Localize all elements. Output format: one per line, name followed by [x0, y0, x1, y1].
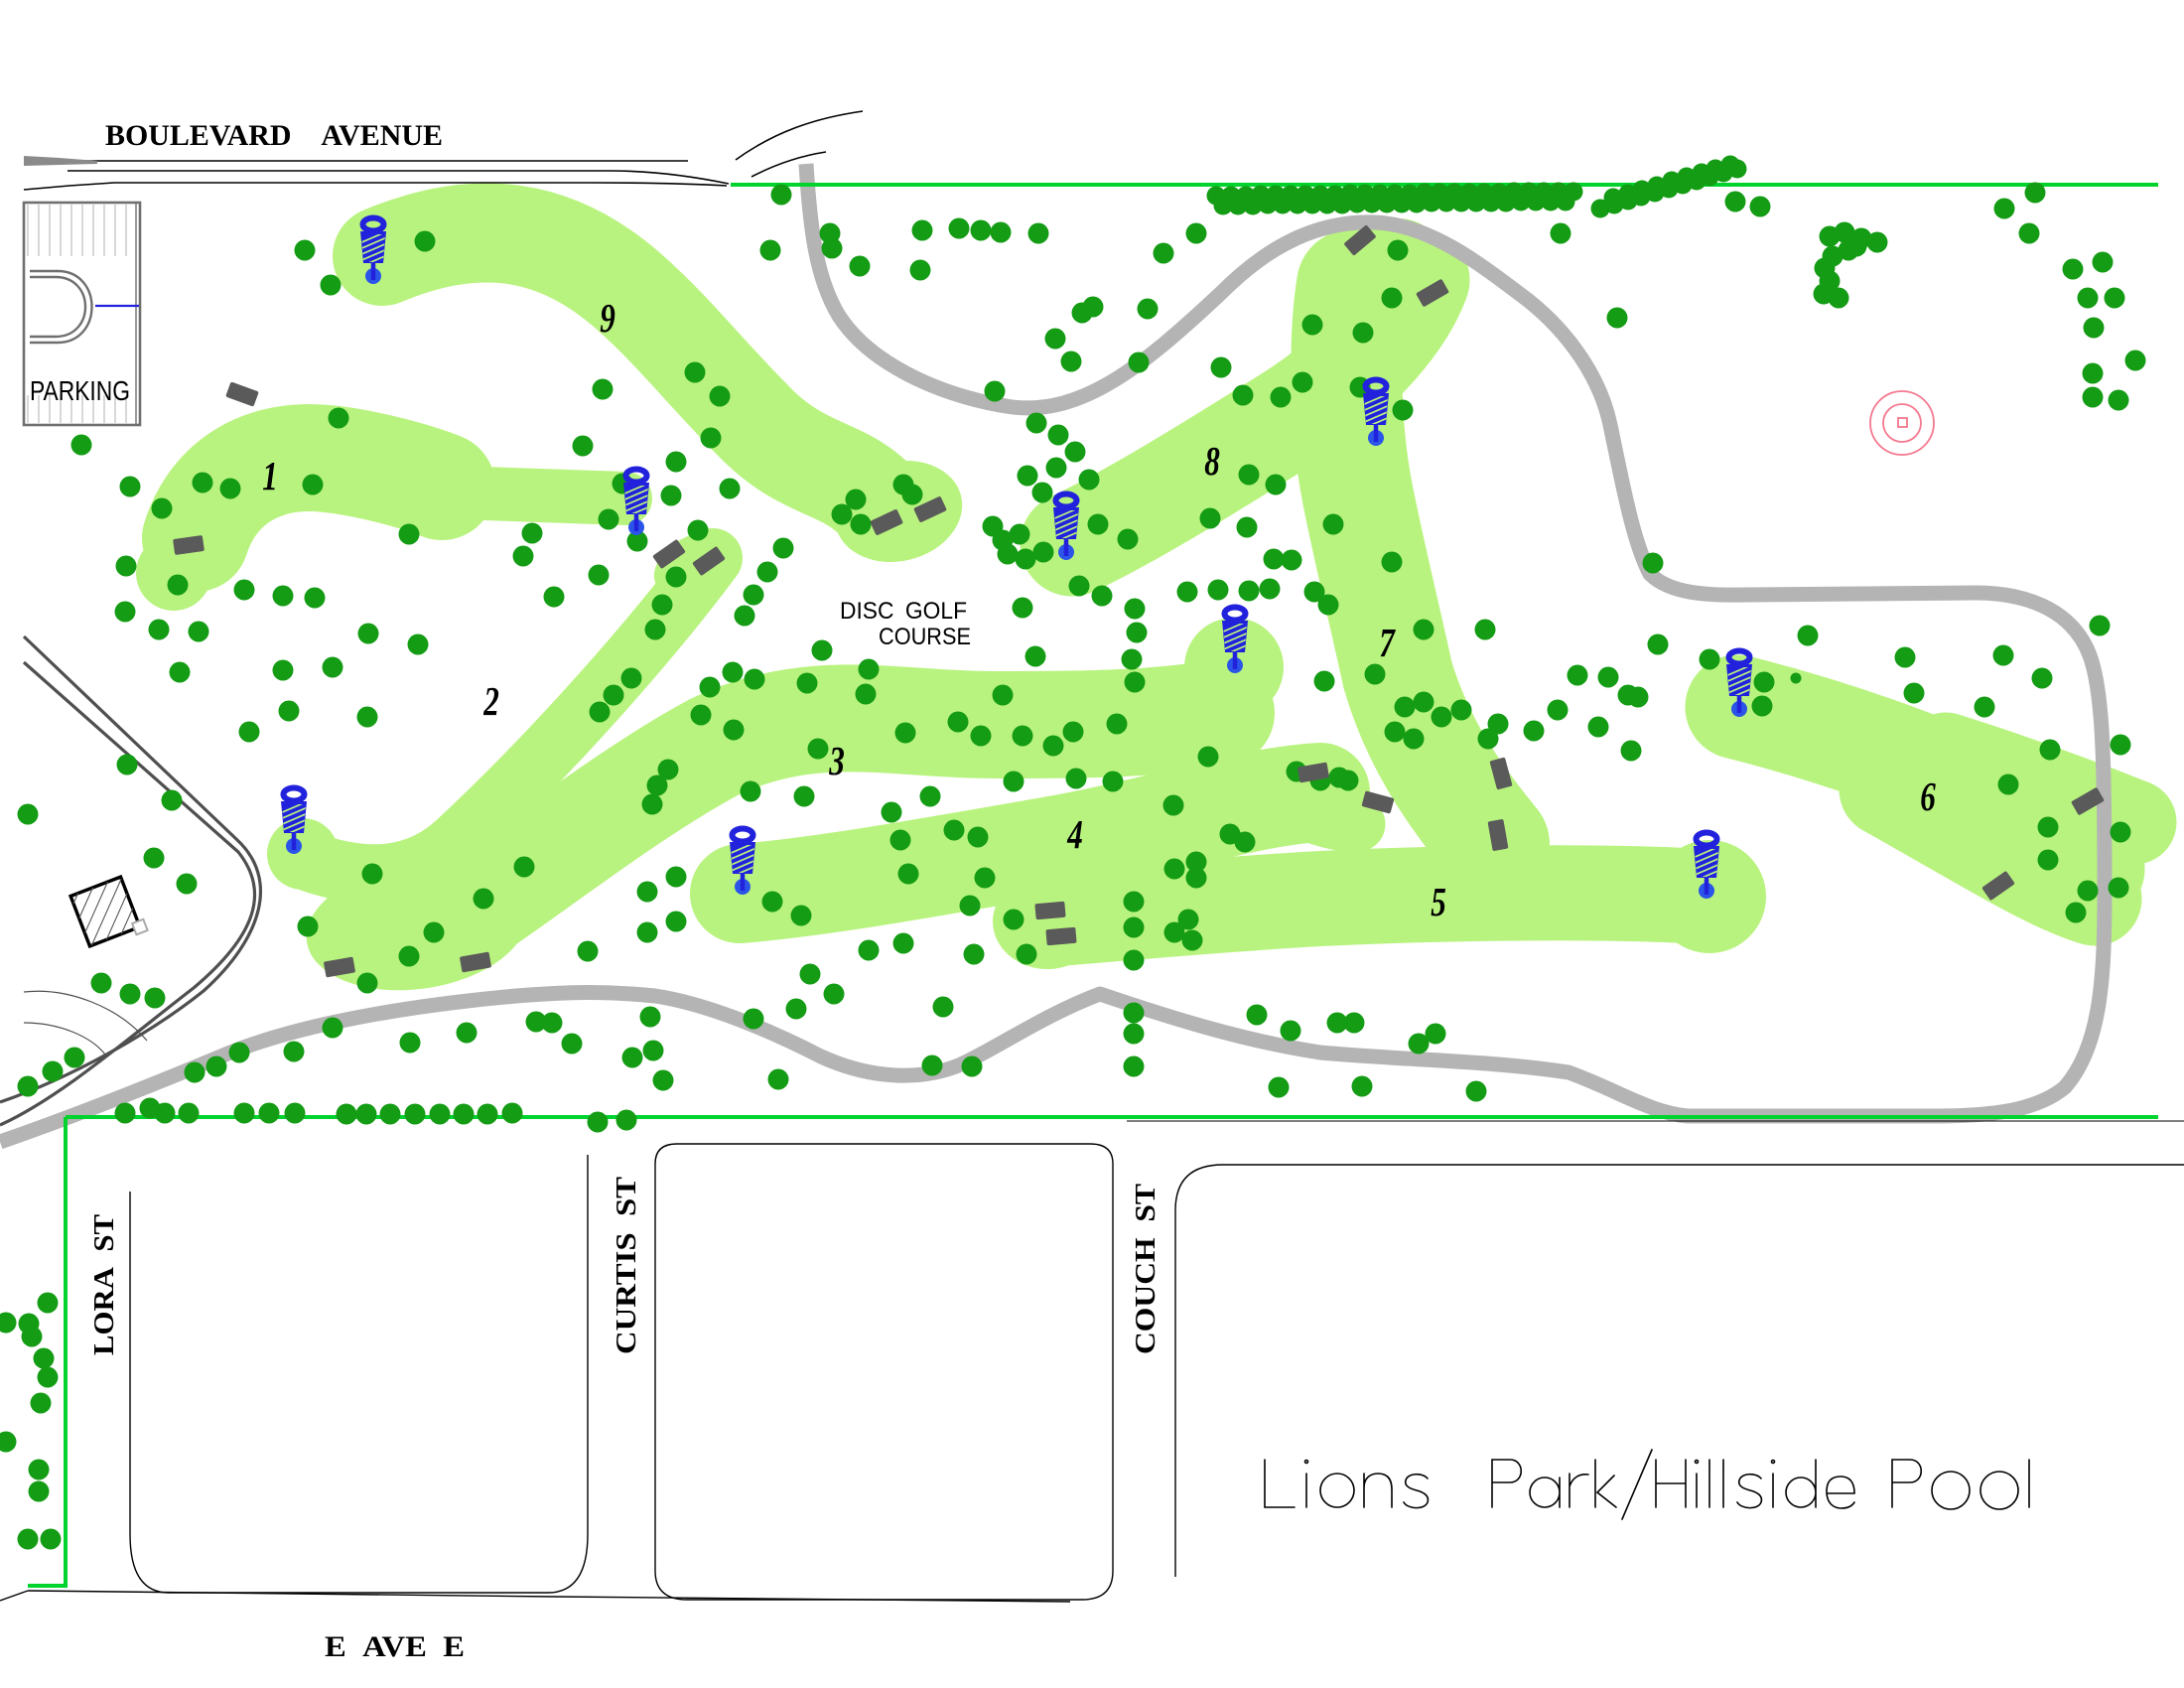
svg-text:2: 2 [482, 679, 498, 724]
svg-text:9: 9 [600, 296, 615, 341]
svg-text:PARKING: PARKING [30, 375, 130, 406]
svg-text:DISC GOLF: DISC GOLF [840, 598, 967, 625]
svg-text:E AVE E: E AVE E [325, 1630, 465, 1663]
svg-text:COUCH ST: COUCH ST [1131, 1184, 1161, 1354]
svg-text:COURSE: COURSE [879, 624, 971, 650]
svg-text:4: 4 [1066, 812, 1082, 857]
svg-text:1: 1 [262, 454, 278, 498]
svg-text:BOULEVARD AVENUE: BOULEVARD AVENUE [105, 119, 443, 152]
svg-text:CURTIS ST: CURTIS ST [612, 1177, 642, 1354]
svg-text:LORA ST: LORA ST [89, 1214, 120, 1355]
svg-text:8: 8 [1204, 439, 1220, 484]
svg-text:5: 5 [1431, 880, 1446, 924]
svg-text:7: 7 [1379, 621, 1396, 665]
svg-text:6: 6 [1920, 774, 1936, 819]
svg-text:3: 3 [828, 739, 844, 783]
